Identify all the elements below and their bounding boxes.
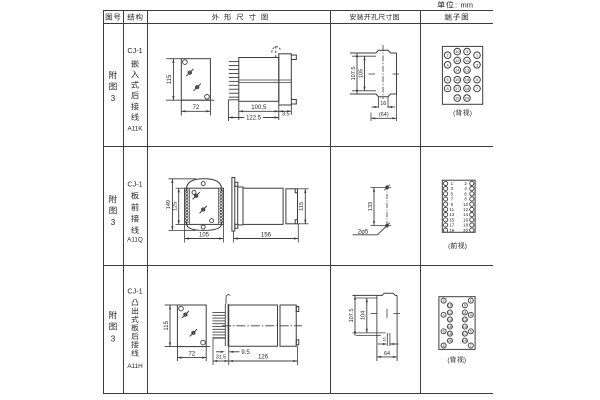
svg-text:(64): (64) xyxy=(379,112,389,118)
svg-text:16: 16 xyxy=(381,337,386,342)
svg-text:100.5: 100.5 xyxy=(251,105,267,111)
svg-text:): ) xyxy=(464,357,466,364)
svg-text:115: 115 xyxy=(167,74,173,84)
svg-text:122.5: 122.5 xyxy=(246,116,262,122)
svg-text:16: 16 xyxy=(465,77,470,82)
svg-text:18: 18 xyxy=(448,332,452,336)
svg-text:3.5: 3.5 xyxy=(282,111,290,117)
svg-text:72: 72 xyxy=(193,105,200,111)
svg-text:13: 13 xyxy=(463,318,467,322)
svg-text:A11K: A11K xyxy=(128,126,144,133)
svg-text:CJ-1: CJ-1 xyxy=(127,46,142,55)
svg-text:8: 8 xyxy=(443,344,445,348)
svg-text:13: 13 xyxy=(465,68,470,73)
svg-text:20: 20 xyxy=(448,339,452,343)
svg-text:3: 3 xyxy=(470,313,472,317)
svg-text::: : xyxy=(455,0,457,9)
svg-text:3: 3 xyxy=(111,218,116,227)
svg-text:15: 15 xyxy=(463,325,467,329)
svg-text:12: 12 xyxy=(448,311,452,315)
svg-text:A11Q: A11Q xyxy=(127,237,143,244)
svg-text:5: 5 xyxy=(470,330,472,334)
svg-text:72: 72 xyxy=(188,351,195,357)
svg-text:107.5: 107.5 xyxy=(351,67,357,81)
svg-text:1: 1 xyxy=(470,299,472,303)
svg-text:16: 16 xyxy=(380,101,386,107)
svg-text:11: 11 xyxy=(463,311,467,315)
svg-text:A11H: A11H xyxy=(127,363,143,370)
svg-text:10: 10 xyxy=(448,304,452,308)
svg-text:107.5: 107.5 xyxy=(349,309,355,323)
svg-text:3: 3 xyxy=(111,94,116,103)
svg-text:10: 10 xyxy=(455,49,460,54)
svg-text:mm: mm xyxy=(461,0,474,9)
svg-text:16: 16 xyxy=(448,325,452,329)
svg-text:2φ5: 2φ5 xyxy=(358,230,369,236)
svg-text:17: 17 xyxy=(463,332,467,336)
svg-text:15: 15 xyxy=(455,77,460,82)
svg-text:115: 115 xyxy=(299,202,305,211)
svg-text:14: 14 xyxy=(448,318,452,322)
svg-text:CJ-1: CJ-1 xyxy=(127,180,142,189)
svg-text:12: 12 xyxy=(455,58,460,63)
svg-text:64: 64 xyxy=(384,351,390,357)
svg-text:2: 2 xyxy=(443,299,445,303)
svg-text:9: 9 xyxy=(464,304,466,308)
svg-text:126: 126 xyxy=(258,355,269,361)
svg-text:9.5: 9.5 xyxy=(241,350,250,356)
svg-text:17: 17 xyxy=(455,86,460,91)
svg-text:105: 105 xyxy=(199,232,210,238)
svg-text:14: 14 xyxy=(455,68,460,73)
svg-text:115: 115 xyxy=(164,320,170,330)
svg-text:): ) xyxy=(470,110,472,117)
svg-text:18: 18 xyxy=(465,86,470,91)
svg-text:133: 133 xyxy=(368,202,374,211)
svg-text:19: 19 xyxy=(449,228,454,233)
svg-text:20: 20 xyxy=(465,96,470,101)
svg-text:104: 104 xyxy=(361,311,367,320)
svg-text:CJ-1: CJ-1 xyxy=(127,287,142,296)
svg-text:3: 3 xyxy=(111,335,116,344)
svg-text:): ) xyxy=(465,243,467,250)
svg-text:20: 20 xyxy=(463,228,468,233)
svg-text:125: 125 xyxy=(173,202,179,211)
svg-text:19: 19 xyxy=(455,96,460,101)
svg-text:156: 156 xyxy=(261,232,272,238)
svg-text:7: 7 xyxy=(470,344,472,348)
svg-text:4: 4 xyxy=(443,313,445,317)
svg-text:19: 19 xyxy=(463,339,467,343)
svg-text:6: 6 xyxy=(443,330,445,334)
svg-text:31.5: 31.5 xyxy=(216,355,226,361)
svg-text:105: 105 xyxy=(358,69,364,78)
svg-text:149: 149 xyxy=(166,200,172,209)
